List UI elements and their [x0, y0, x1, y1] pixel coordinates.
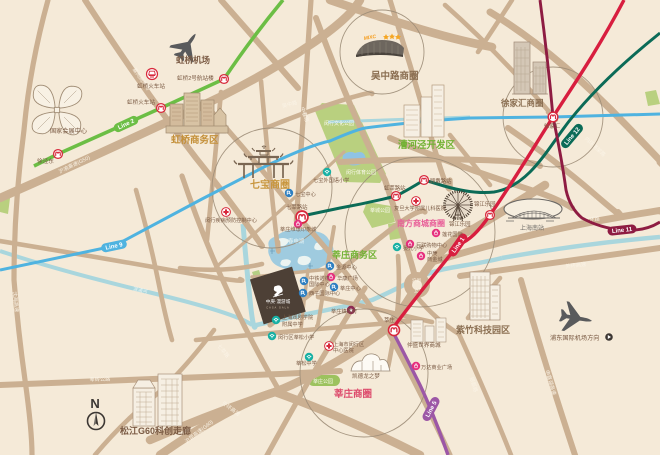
- svg-text:中庚·漫游城: 中庚·漫游城: [266, 298, 291, 305]
- svg-text:七莘路站: 七莘路站: [286, 203, 308, 211]
- svg-text:莘庄商圈: 莘庄商圈: [334, 388, 372, 400]
- svg-text:CASA GALA: CASA GALA: [266, 306, 290, 310]
- svg-text:复旦大学附属儿科医院: 复旦大学附属儿科医院: [394, 204, 447, 212]
- svg-text:浦东国际机场方向: 浦东国际机场方向: [550, 334, 600, 342]
- svg-text:莘松中学: 莘松中学: [296, 359, 317, 367]
- svg-text:沪闵: 沪闵: [412, 277, 421, 284]
- svg-text:莘庄商务区: 莘庄商务区: [332, 249, 377, 260]
- svg-text:虹桥商务区: 虹桥商务区: [171, 134, 219, 146]
- svg-text:莘庄公园: 莘庄公园: [313, 378, 333, 385]
- svg-text:闵行区莘松小学: 闵行区莘松小学: [278, 333, 314, 341]
- svg-text:西子国际中心: 西子国际中心: [309, 289, 340, 297]
- svg-text:锦江乐园: 锦江乐园: [449, 220, 471, 228]
- svg-text:闵行文化公园: 闵行文化公园: [324, 120, 354, 127]
- svg-text:中心医院: 中心医院: [333, 346, 355, 354]
- svg-text:锦江乐园: 锦江乐园: [474, 200, 496, 208]
- svg-text:虹桥机场: 虹桥机场: [176, 55, 211, 65]
- svg-text:虹桥火车站: 虹桥火车站: [137, 82, 165, 90]
- svg-text:中庚: 中庚: [427, 249, 437, 257]
- svg-text:紫竹科技园区: 紫竹科技园区: [456, 324, 510, 335]
- svg-text:金源中心: 金源中心: [336, 263, 357, 271]
- svg-text:仲盛世界商城: 仲盛世界商城: [407, 341, 441, 349]
- svg-text:莘庄镇政府: 莘庄镇政府: [331, 307, 357, 315]
- svg-text:莘庄: 莘庄: [384, 316, 395, 324]
- svg-text:凯德龙之梦: 凯德龙之梦: [352, 372, 380, 380]
- svg-text:万达商业广场: 万达商业广场: [421, 363, 452, 371]
- svg-text:国际中心: 国际中心: [309, 280, 330, 288]
- svg-text:附属中学: 附属中学: [282, 320, 303, 328]
- svg-text:徐泾东: 徐泾东: [37, 157, 54, 165]
- svg-text:N: N: [90, 396, 99, 411]
- svg-text:漕河泾开发区: 漕河泾开发区: [398, 139, 456, 151]
- svg-text:松江G60科创走廊: 松江G60科创走廊: [120, 425, 191, 436]
- svg-text:徐家汇: 徐家汇: [544, 122, 561, 130]
- svg-text:莘城公园: 莘城公园: [370, 207, 390, 214]
- svg-text:上海南站: 上海南站: [520, 224, 544, 232]
- svg-text:莘庄维璟印象城: 莘庄维璟印象城: [280, 225, 317, 233]
- svg-text:上海戏剧学院: 上海戏剧学院: [282, 313, 314, 321]
- svg-text:莲花国际: 莲花国际: [442, 230, 463, 238]
- svg-text:徐家汇商圈: 徐家汇商圈: [500, 98, 544, 108]
- svg-text:国家会展中心: 国家会展中心: [50, 127, 87, 135]
- svg-text:春申湖: 春申湖: [288, 237, 304, 245]
- svg-text:七宝中心: 七宝中心: [295, 190, 316, 198]
- svg-text:上海市闵行区: 上海市闵行区: [333, 340, 364, 348]
- svg-text:七宝商圈: 七宝商圈: [250, 178, 290, 191]
- svg-text:吴中路商圈: 吴中路商圈: [371, 70, 419, 82]
- svg-text:虹桥火车站: 虹桥火车站: [127, 98, 155, 106]
- svg-text:南方商城商圈: 南方商城商圈: [397, 218, 445, 228]
- svg-text:虹莘路站: 虹莘路站: [384, 184, 406, 192]
- svg-text:闵行体育公园: 闵行体育公园: [346, 169, 376, 176]
- svg-text:七宝外国语小学: 七宝外国语小学: [313, 176, 349, 184]
- svg-text:莘庄中心: 莘庄中心: [340, 284, 361, 292]
- svg-text:华康广场: 华康广场: [337, 274, 358, 282]
- svg-text:中铁诺德: 中铁诺德: [309, 274, 330, 282]
- svg-text:虹桥2号航站楼: 虹桥2号航站楼: [177, 74, 214, 82]
- svg-text:顾戴路站: 顾戴路站: [430, 177, 452, 185]
- svg-text:商金城: 商金城: [427, 255, 443, 263]
- svg-text:闵行疾病预防控制中心: 闵行疾病预防控制中心: [205, 216, 257, 224]
- svg-text:巨联购物中心: 巨联购物中心: [416, 241, 447, 249]
